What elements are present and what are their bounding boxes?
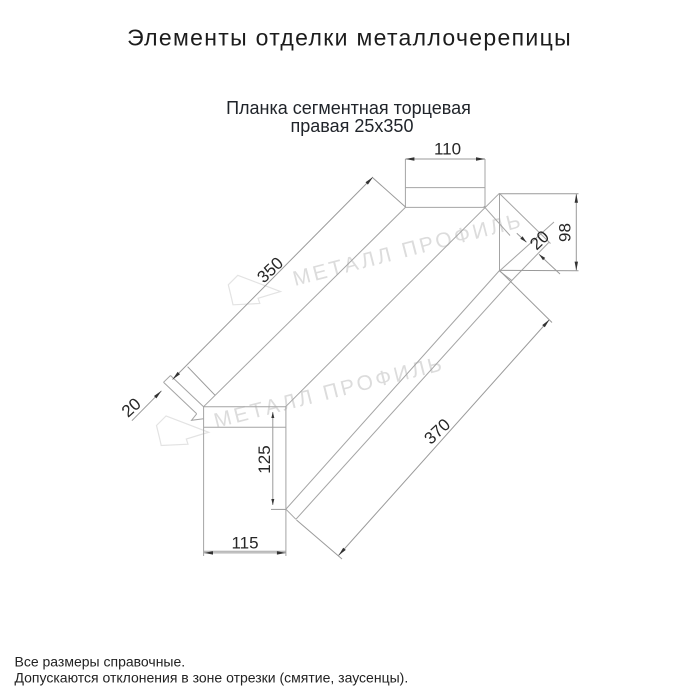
svg-text:правая 25х350: правая 25х350 bbox=[291, 116, 414, 136]
svg-text:Все размеры справочные.: Все размеры справочные. bbox=[15, 653, 186, 669]
svg-text:Планка сегментная торцевая: Планка сегментная торцевая bbox=[226, 98, 471, 118]
svg-text:115: 115 bbox=[231, 534, 258, 553]
svg-text:Допускаются отклонения в зоне: Допускаются отклонения в зоне отрезки (с… bbox=[15, 669, 409, 685]
svg-text:Элементы отделки металлочерепи: Элементы отделки металлочерепицы bbox=[127, 25, 572, 51]
svg-text:125: 125 bbox=[255, 445, 274, 473]
svg-text:98: 98 bbox=[556, 223, 575, 242]
svg-text:110: 110 bbox=[434, 139, 461, 158]
